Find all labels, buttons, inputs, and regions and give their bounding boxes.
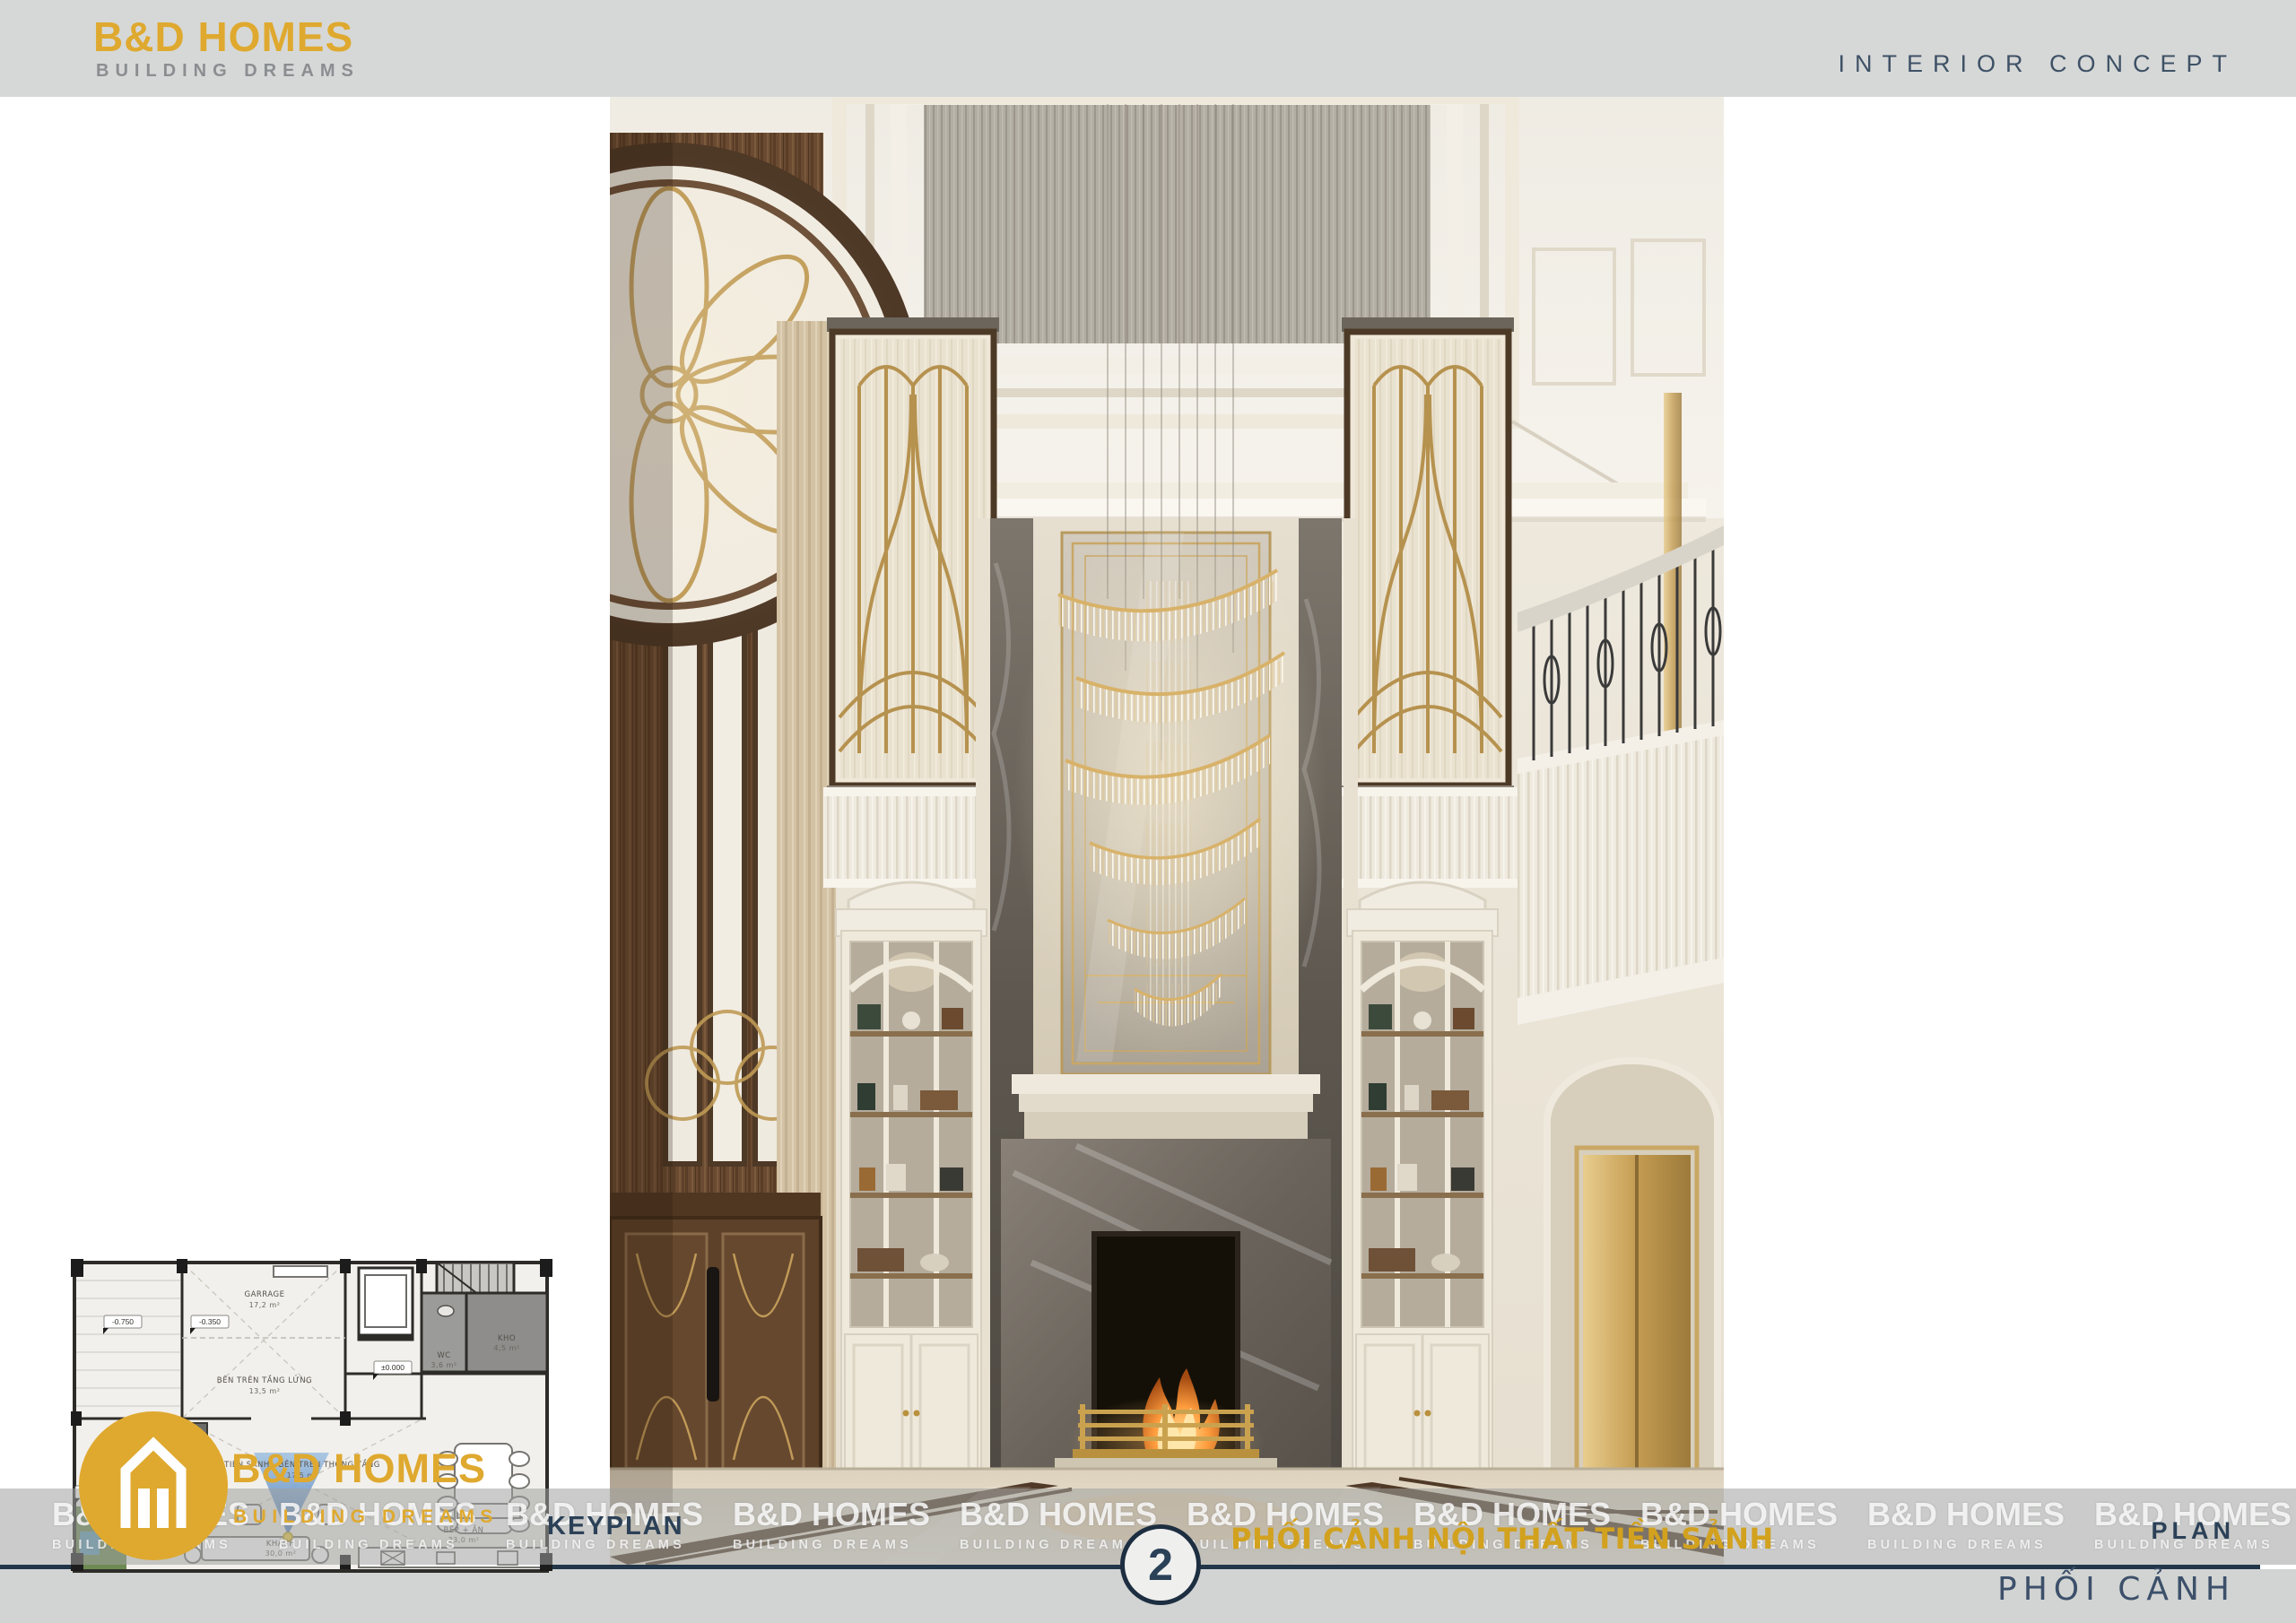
svg-text:-0.750: -0.750 xyxy=(112,1317,134,1326)
svg-text:GARRAGE: GARRAGE xyxy=(245,1290,285,1299)
keyplan-logo-badge xyxy=(79,1411,228,1560)
gold-grille-right xyxy=(1342,317,1514,798)
display-cabinet-left xyxy=(836,882,987,1497)
interior-concept-label: INTERIOR CONCEPT xyxy=(1838,50,2237,78)
presentation-board: B&D HOMES BUILDING DREAMS INTERIOR CONCE… xyxy=(0,0,2296,1623)
keyplan-logo-tagline: BUILDING DREAMS xyxy=(233,1506,499,1528)
interior-render xyxy=(610,97,1724,1565)
brand-logo-text: B&D HOMES xyxy=(93,13,353,61)
svg-text:4,5 m²: 4,5 m² xyxy=(493,1344,519,1352)
svg-text:3,6 m²: 3,6 m² xyxy=(430,1361,457,1369)
keyplan-logo-text: B&D HOMES xyxy=(231,1445,486,1492)
plan-caption: PHỐI CẢNH xyxy=(1969,1571,2265,1608)
svg-text:KHO: KHO xyxy=(498,1334,516,1343)
sheet-title: PHỐI CẢNH NỘI THẤT TIỀN SẢNH xyxy=(1231,1522,1930,1556)
gold-grille-left xyxy=(827,317,999,798)
header-band: B&D HOMES BUILDING DREAMS INTERIOR CONCE… xyxy=(0,0,2296,97)
svg-text:WC: WC xyxy=(437,1351,450,1360)
display-cabinet-right xyxy=(1347,882,1498,1497)
house-icon xyxy=(79,1411,228,1560)
keyplan-label: KEYPLAN xyxy=(547,1512,684,1541)
svg-text:13,5 m²: 13,5 m² xyxy=(249,1387,281,1395)
left-vignette xyxy=(610,133,673,1514)
plan-label: PLAN xyxy=(2152,1517,2236,1545)
watermark-item: B&D HOMESBUILDING DREAMS xyxy=(733,1496,922,1565)
sheet-number-badge: 2 xyxy=(1120,1524,1201,1605)
svg-text:-0.350: -0.350 xyxy=(199,1317,221,1326)
fireplace xyxy=(1001,1139,1331,1497)
gold-elevator xyxy=(1547,1061,1724,1497)
brand-tagline: BUILDING DREAMS xyxy=(96,61,360,82)
sheet-number: 2 xyxy=(1148,1539,1173,1591)
svg-text:±0.000: ±0.000 xyxy=(381,1363,404,1372)
svg-text:17,2 m²: 17,2 m² xyxy=(249,1301,281,1309)
